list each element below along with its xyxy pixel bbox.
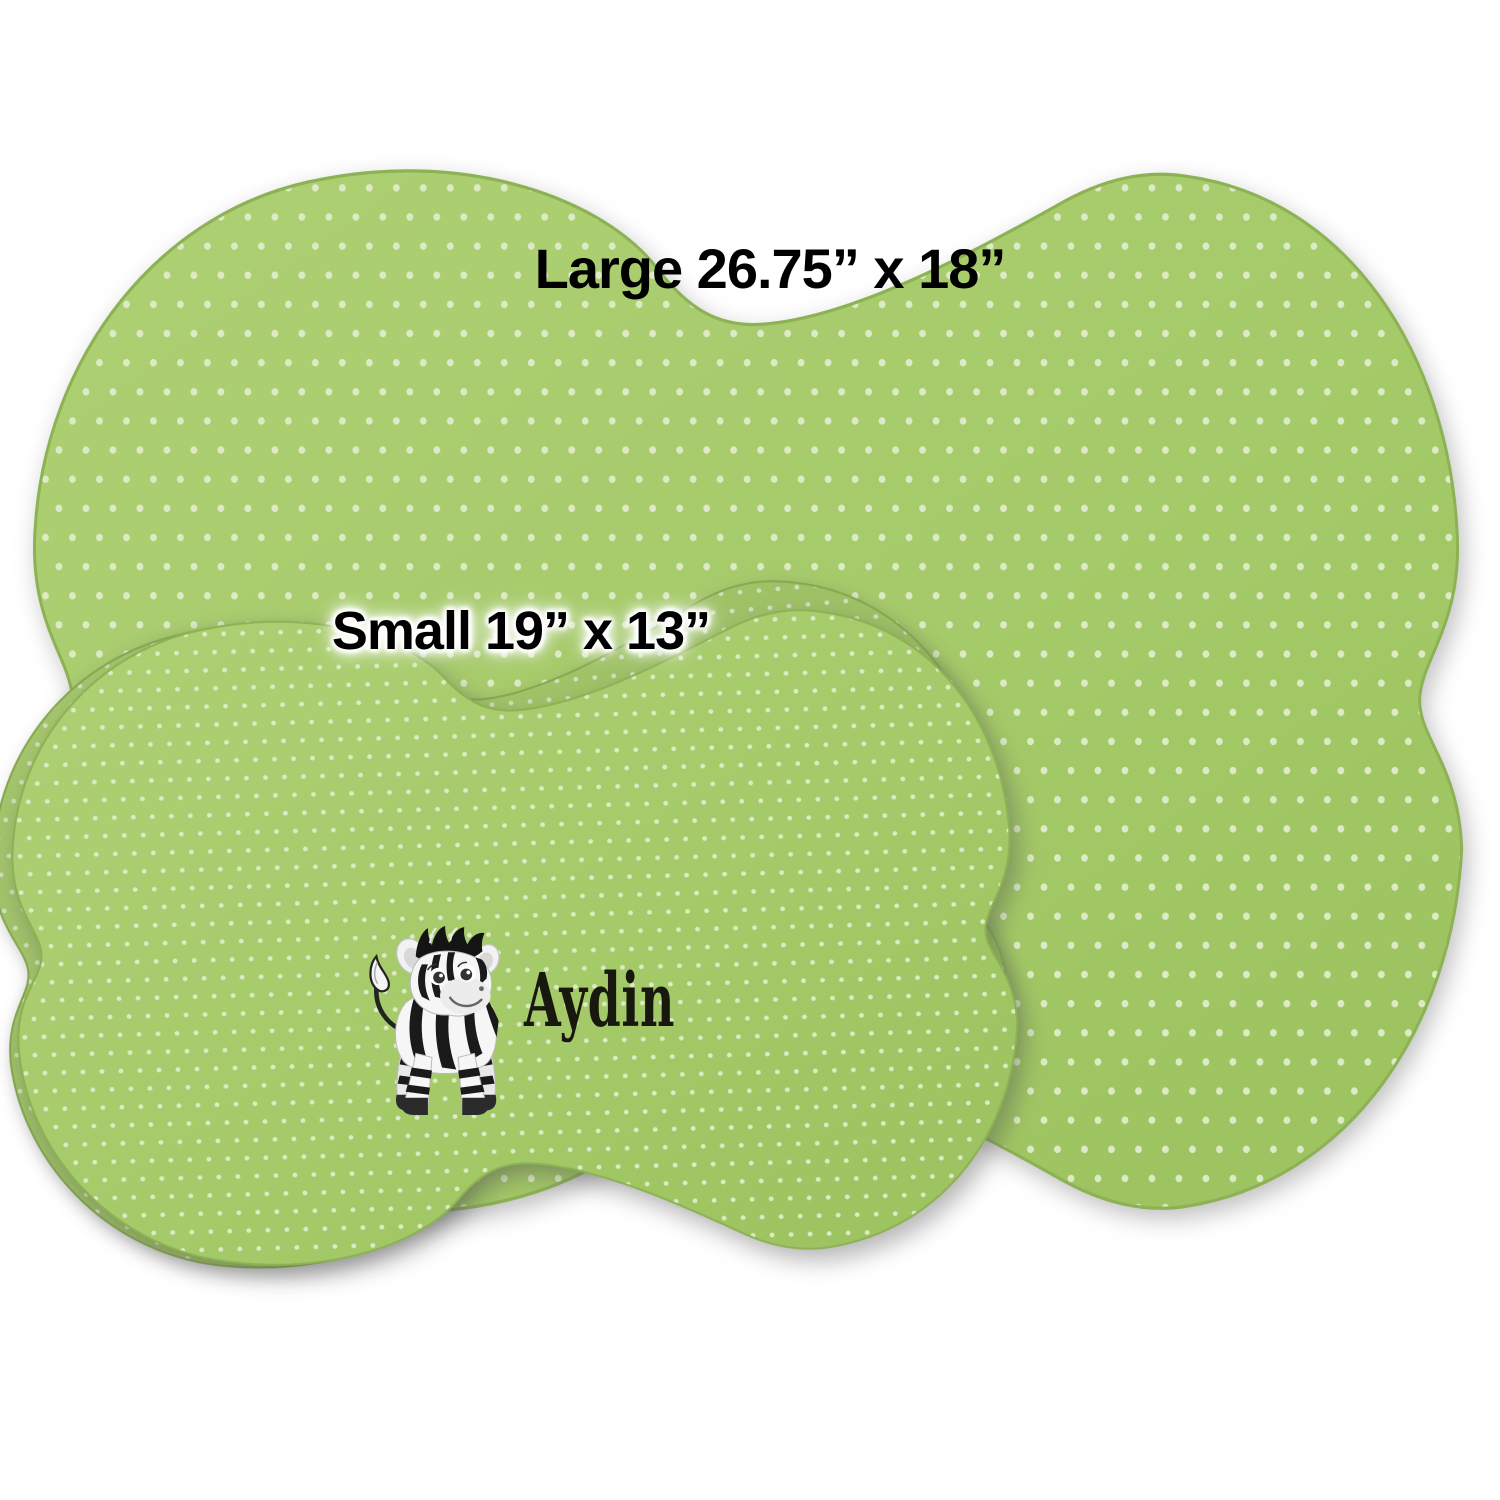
personalized-name: Aydin: [524, 964, 675, 1038]
small-size-label: Small 19” x 13”: [332, 602, 710, 661]
placemat-product-preview: Aydin Large 26.75” x 18” Small 19” x 13”: [0, 0, 1500, 1500]
large-size-label: Large 26.75” x 18”: [535, 238, 1006, 300]
zebra-tail: [370, 956, 399, 1029]
baby-zebra-illustration: [352, 926, 522, 1120]
small-placemat: [0, 567, 1048, 1310]
